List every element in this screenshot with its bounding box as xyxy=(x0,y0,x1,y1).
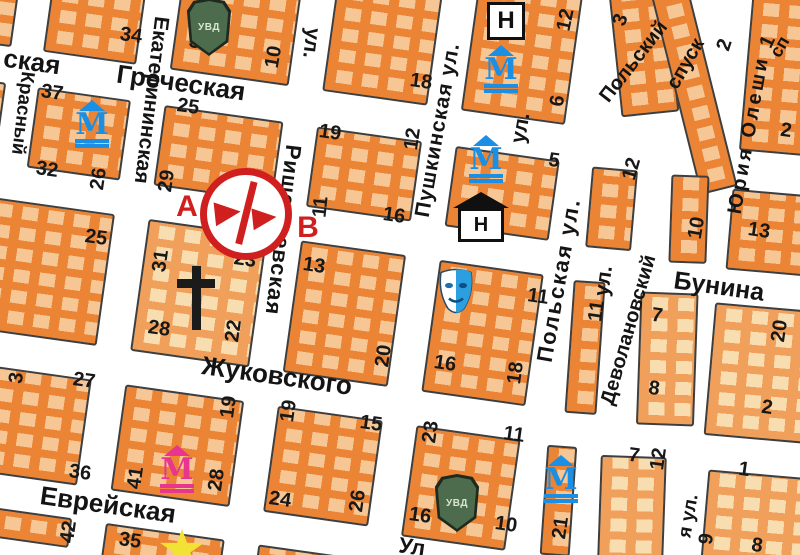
house-number: 16 xyxy=(381,203,406,229)
house-number: 10 xyxy=(493,512,518,538)
house-number: 19 xyxy=(276,398,302,423)
house-number: 11 xyxy=(584,299,610,323)
street-label-ul: ул. xyxy=(297,26,325,59)
house-number: 21 xyxy=(548,515,574,540)
house-number: 12 xyxy=(646,446,672,471)
metro-icon: М xyxy=(481,45,521,93)
house-number: 31 xyxy=(148,248,174,273)
house-number: 26 xyxy=(86,166,112,191)
house-number: 10 xyxy=(684,215,711,241)
map-canvas[interactable]: ская Греческая Екатерининская ул. Ришель… xyxy=(0,0,800,555)
house-number: 22 xyxy=(221,318,247,343)
house-number: 23 xyxy=(418,419,444,444)
house-number: 16 xyxy=(407,503,432,529)
route-point-b-label[interactable]: В xyxy=(297,211,319,245)
house-number: 28 xyxy=(146,316,171,342)
house-number: 42 xyxy=(56,519,82,544)
house-number: 41 xyxy=(123,465,149,490)
metro-icon: М xyxy=(466,135,506,183)
house-number: 11 xyxy=(502,422,526,448)
house-number: 12 xyxy=(552,7,579,34)
route-point-a-label[interactable]: А xyxy=(176,190,198,224)
house-number: 35 xyxy=(117,528,142,554)
house-number: 36 xyxy=(67,460,92,486)
street-label-ul-partial: Ул xyxy=(397,532,427,555)
house-number: 32 xyxy=(34,157,59,183)
house-number: 26 xyxy=(345,488,371,513)
city-block xyxy=(0,0,37,47)
house-number: 18 xyxy=(503,360,529,385)
house-number: 2 xyxy=(712,36,737,54)
house-number: 16 xyxy=(432,351,457,377)
metro-icon-pink: М xyxy=(157,445,197,493)
hotel-icon: Н xyxy=(487,2,525,40)
city-block xyxy=(238,544,363,555)
route-marker[interactable] xyxy=(200,168,292,260)
house-roof-icon xyxy=(453,192,509,208)
house-number: 13 xyxy=(301,253,326,279)
house-number: 20 xyxy=(371,343,397,368)
theater-mask-icon xyxy=(437,267,475,322)
metro-icon: М xyxy=(541,455,581,503)
house-number: 27 xyxy=(71,368,96,394)
house-number: 19 xyxy=(317,120,342,146)
house-number: 28 xyxy=(204,467,230,492)
city-block xyxy=(0,174,115,346)
house-number: 37 xyxy=(39,80,64,106)
house-number: 18 xyxy=(408,69,433,95)
house-number: 20 xyxy=(767,318,793,343)
street-label-ul: ул. xyxy=(590,264,618,298)
house-number: 15 xyxy=(358,411,383,437)
house-number: 13 xyxy=(746,218,771,244)
house-number: 19 xyxy=(216,394,242,419)
city-block xyxy=(0,61,6,163)
city-block xyxy=(86,523,225,555)
church-cross-icon xyxy=(173,266,219,330)
house-number: 10 xyxy=(261,44,288,70)
metro-icon: М xyxy=(72,100,112,148)
house-number: 25 xyxy=(83,225,108,251)
hotel-house-icon: Н xyxy=(453,192,509,242)
house-number: 34 xyxy=(118,23,143,49)
house-number: 24 xyxy=(267,487,292,513)
route-flags-icon xyxy=(203,171,289,257)
